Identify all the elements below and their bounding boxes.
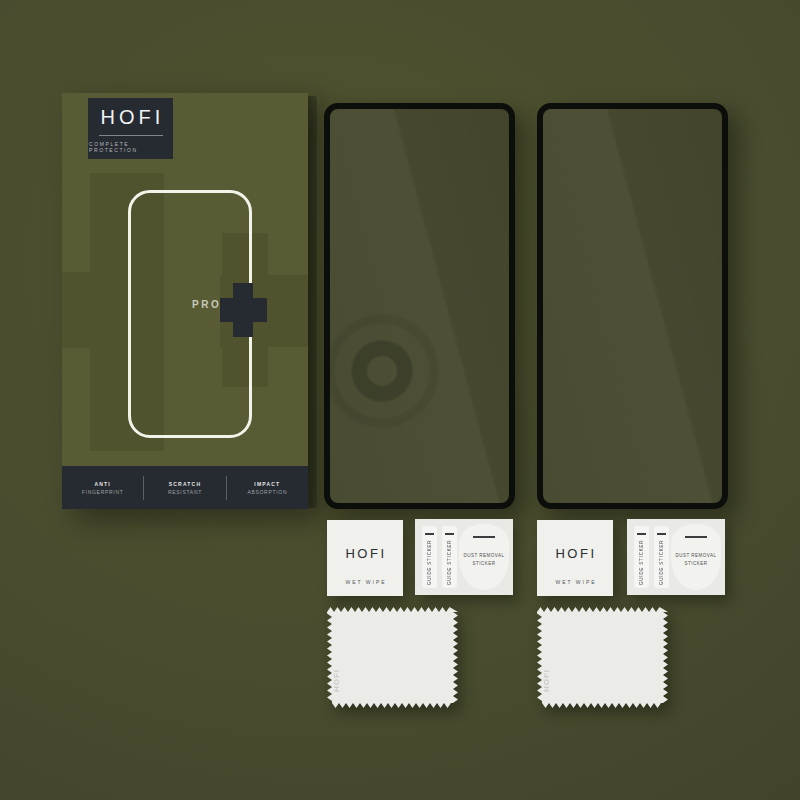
guide-sticker: GUIDE STICKER	[422, 526, 437, 588]
guide-sticker: GUIDE STICKER	[654, 526, 669, 588]
brand-badge: HOFI COMPLETE PROTECTION	[88, 98, 173, 159]
sticker-sheet-2: GUIDE STICKER GUIDE STICKER DUST REMOVAL…	[627, 519, 725, 595]
hofi-logo: HOFI	[553, 546, 596, 561]
hofi-logo: HOFI	[343, 546, 386, 561]
microfiber-cloth-2: HOFI	[537, 607, 668, 708]
plus-icon	[220, 283, 267, 337]
wet-wipe-label: WET WIPE	[343, 579, 386, 585]
hofi-logo: HOFI	[332, 669, 341, 692]
brand-tagline: COMPLETE PROTECTION	[88, 141, 173, 153]
wet-wipe-packet-2: HOFI WET WIPE	[537, 520, 613, 596]
guide-sticker: GUIDE STICKER	[442, 526, 457, 588]
guide-sticker: GUIDE STICKER	[634, 526, 649, 588]
dust-removal-sticker: DUST REMOVALSTICKER	[459, 524, 509, 590]
product-box: HOFI COMPLETE PROTECTION PRO ANTI FINGER…	[62, 93, 308, 509]
product-photo: HOFI COMPLETE PROTECTION PRO ANTI FINGER…	[0, 0, 800, 800]
wet-wipe-label: WET WIPE	[553, 579, 596, 585]
box-side-face	[308, 96, 317, 508]
glass-reflection-ring	[322, 311, 442, 431]
microfiber-cloth-1: HOFI	[327, 607, 458, 708]
pro-label: PRO	[192, 299, 221, 310]
hofi-logo: HOFI	[97, 107, 165, 127]
wet-wipe-packet-1: HOFI WET WIPE	[327, 520, 403, 596]
sticker-sheet-1: GUIDE STICKER GUIDE STICKER DUST REMOVAL…	[415, 519, 513, 595]
feature-impact-absorption: IMPACT ABSORPTION	[227, 481, 308, 495]
feature-anti-fingerprint: ANTI FINGERPRINT	[62, 481, 143, 495]
dust-removal-sticker: DUST REMOVALSTICKER	[671, 524, 721, 590]
glass-protector-2	[537, 103, 728, 509]
glass-protector-1	[324, 103, 515, 509]
feature-scratch-resistant: SCRATCH RESISTANT	[144, 481, 225, 495]
hofi-logo: HOFI	[542, 669, 551, 692]
badge-divider	[99, 135, 163, 136]
feature-band: ANTI FINGERPRINT SCRATCH RESISTANT IMPAC…	[62, 466, 308, 509]
